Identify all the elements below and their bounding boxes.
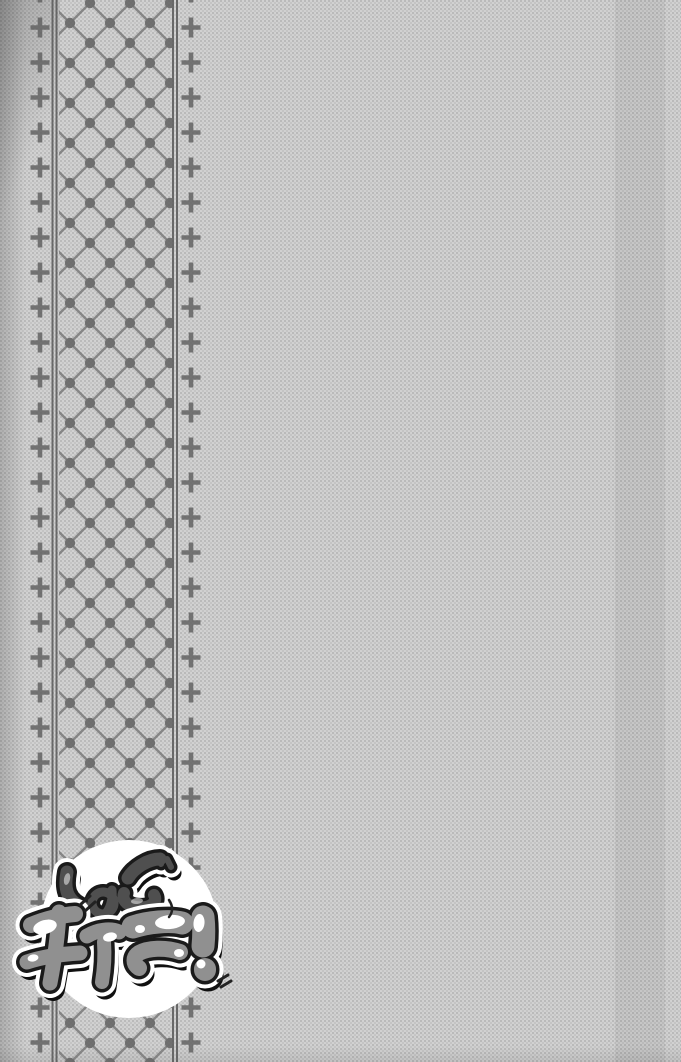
series-logo-badge: しゅご キャラ! xyxy=(0,830,240,1062)
series-logo xyxy=(0,830,240,1062)
manga-page: しゅご キャラ! xyxy=(0,0,681,1062)
